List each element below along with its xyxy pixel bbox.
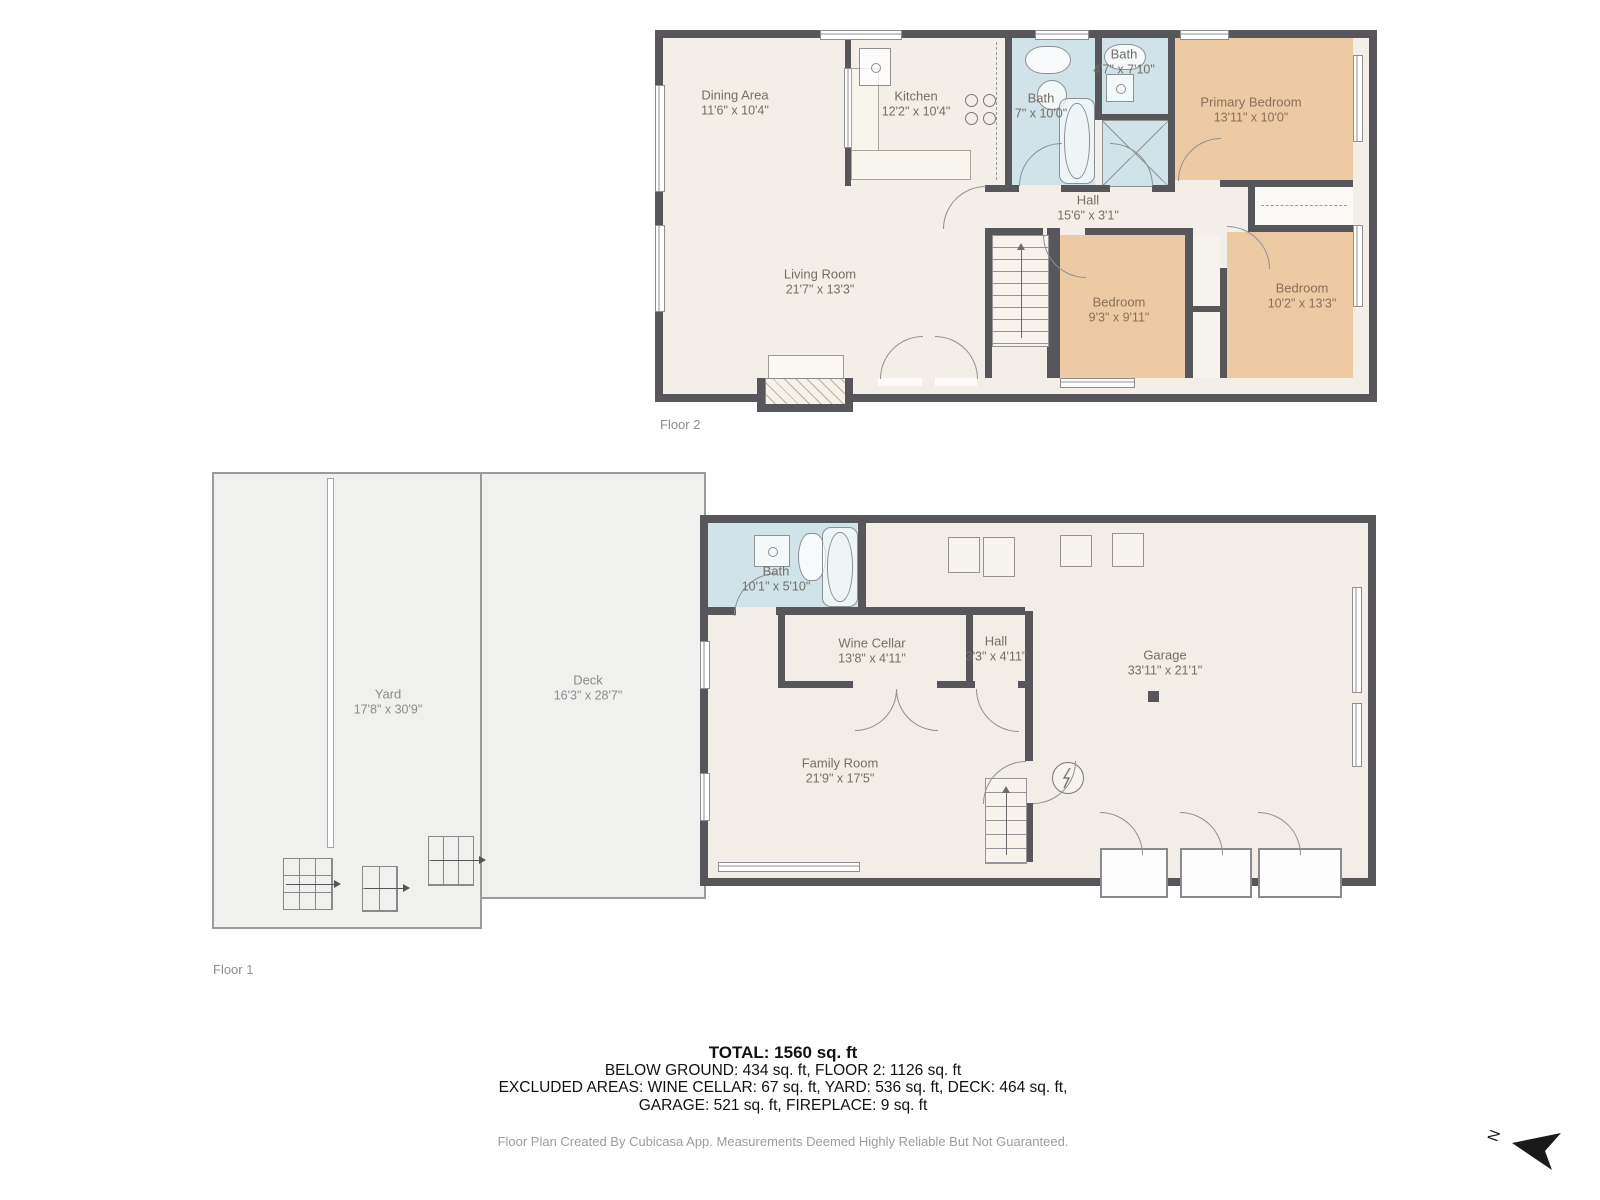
room-name: Family Room: [802, 756, 879, 772]
room-name: Wine Cellar: [838, 636, 906, 652]
kitchen-counter: [851, 150, 971, 180]
wall: [985, 228, 1043, 235]
bath-sink: [754, 535, 790, 567]
room-name: Living Room: [784, 267, 856, 283]
room-dims: 21'7" x 13'3": [784, 282, 856, 297]
room-label-living: Living Room 21'7" x 13'3": [784, 267, 856, 298]
window: [1060, 378, 1135, 388]
door-arc: [1033, 761, 1076, 804]
appliance-dashed-line: [996, 42, 997, 180]
room-label-bath: Bath 10'1" x 5'10": [742, 564, 811, 595]
stove-burner: [983, 112, 996, 125]
staircase: [992, 235, 1049, 347]
summary-line2: EXCLUDED AREAS: WINE CELLAR: 67 sq. ft, …: [320, 1079, 1246, 1097]
room-dims: 16'3" x 28'7": [554, 688, 623, 703]
wall: [778, 681, 853, 688]
room-label-yard: Yard 17'8" x 30'9": [354, 687, 423, 718]
stove-burner: [965, 112, 978, 125]
room-dims: 15'6" x 3'1": [1057, 208, 1119, 223]
window: [655, 85, 665, 192]
door-arc: [983, 761, 1026, 804]
room-label-bedroom-right: Bedroom 10'2" x 13'3": [1268, 281, 1337, 312]
room-dims: 7" x 10'0": [1015, 106, 1067, 121]
room-dims: 13'11" x 10'0": [1200, 110, 1301, 125]
fireplace: [765, 378, 847, 406]
stairs-up-arrow: [1021, 245, 1022, 338]
garage-door-stoop: [1258, 848, 1342, 898]
wall: [1018, 681, 1025, 688]
door-arc: [976, 689, 1019, 732]
north-arrow-dart: [1512, 1133, 1561, 1170]
deck-steps: [428, 836, 474, 886]
room-dims: 33'11" x 21'1": [1128, 663, 1203, 678]
steps-direction-arrow: [365, 888, 403, 889]
window: [1353, 55, 1363, 142]
dryer: [983, 537, 1015, 577]
bath-sink: [1106, 74, 1134, 102]
room-label-hall: Hall 3'3" x 4'11": [966, 634, 1027, 665]
door-arc: [880, 336, 923, 379]
window: [1035, 30, 1089, 40]
floorplan-canvas: Yard 17'8" x 30'9" Deck 16'3" x 28'7": [0, 0, 1600, 1200]
summary-line3: GARAGE: 521 sq. ft, FIREPLACE: 9 sq. ft: [320, 1097, 1246, 1115]
total-area: TOTAL: 1560 sq. ft: [320, 1044, 1246, 1062]
stove-burner: [965, 94, 978, 107]
door-arc: [935, 336, 978, 379]
wall: [858, 523, 866, 615]
wall: [985, 235, 992, 378]
wall: [1152, 185, 1175, 192]
room-dims: 13'8" x 4'11": [838, 651, 906, 666]
appliance: [1112, 533, 1144, 567]
wall: [845, 38, 851, 68]
door-arc: [943, 186, 986, 229]
room-label-bath-main: Bath 7" x 10'0": [1015, 91, 1067, 122]
room-dims: 3'3" x 4'11": [966, 649, 1027, 664]
window: [655, 225, 665, 312]
door-arc: [896, 689, 938, 731]
room-name: Deck: [554, 673, 623, 689]
room-label-kitchen: Kitchen 12'2" x 10'4": [882, 89, 951, 120]
room-name: Yard: [354, 687, 423, 703]
wall: [985, 185, 1019, 192]
garage-door-stoop: [1180, 848, 1252, 898]
wall: [708, 607, 736, 615]
window: [1353, 225, 1363, 307]
kitchen-sink: [859, 48, 891, 86]
room-name: Primary Bedroom: [1200, 95, 1301, 111]
primary-closet: [1255, 187, 1353, 225]
wall: [757, 404, 853, 412]
room-label-dining: Dining Area 11'6" x 10'4": [701, 88, 769, 119]
floor2-label: Floor 2: [660, 417, 700, 432]
window: [700, 641, 710, 689]
room-dims: 12'2" x 10'4": [882, 104, 951, 119]
door-arc: [855, 689, 897, 731]
room-label-garage: Garage 33'11" x 21'1": [1128, 648, 1203, 679]
summary-line1: BELOW GROUND: 434 sq. ft, FLOOR 2: 1126 …: [320, 1062, 1246, 1080]
closet-rod-line: [1261, 205, 1347, 206]
steps-direction-arrow: [431, 860, 479, 861]
north-label: N: [1485, 1128, 1505, 1144]
room-label-hall: Hall 15'6" x 3'1": [1057, 193, 1119, 224]
window: [700, 773, 710, 821]
north-arrow: N: [1455, 1095, 1575, 1185]
stove-burner: [983, 94, 996, 107]
room-name: Bedroom: [1268, 281, 1337, 297]
room-dims: 9'3" x 9'11": [1089, 310, 1150, 325]
wall: [1185, 228, 1193, 378]
room-name: Dining Area: [701, 88, 769, 104]
disclaimer: Floor Plan Created By Cubicasa App. Meas…: [320, 1134, 1246, 1149]
window: [1180, 30, 1229, 40]
steps-direction-arrow: [286, 884, 334, 885]
room-name: Garage: [1128, 648, 1203, 664]
wall: [1220, 268, 1227, 378]
yard-steps: [362, 866, 398, 912]
wall: [1193, 306, 1220, 312]
floor1-label: Floor 1: [213, 962, 253, 977]
room-name: Bath: [1015, 91, 1067, 107]
room-name: Kitchen: [882, 89, 951, 105]
area-summary: TOTAL: 1560 sq. ft BELOW GROUND: 434 sq.…: [320, 1044, 1246, 1114]
wall: [1168, 38, 1175, 187]
window: [718, 862, 860, 872]
room-dims: 4'7" x 7'10": [1093, 62, 1155, 77]
wall: [776, 607, 1025, 615]
room-dims: 10'2" x 13'3": [1268, 296, 1337, 311]
window: [820, 30, 902, 40]
room-name: Bath: [1093, 47, 1155, 63]
door-opening: [878, 378, 922, 386]
room-dims: 21'9" x 17'5": [802, 771, 879, 786]
wall: [1102, 114, 1175, 120]
wall: [1248, 225, 1353, 232]
yard-steps: [283, 858, 333, 910]
wall: [937, 681, 975, 688]
bathtub: [822, 527, 858, 607]
wall: [778, 615, 785, 688]
room-dims: 11'6" x 10'4": [701, 103, 769, 118]
window: [1352, 703, 1362, 767]
room-label-bedroom-mid: Bedroom 9'3" x 9'11": [1089, 295, 1150, 326]
wall: [1085, 228, 1185, 235]
door-arc: [1258, 812, 1301, 855]
room-name: Hall: [1057, 193, 1119, 209]
room-name: Bath: [742, 564, 811, 580]
window: [1352, 587, 1362, 693]
fireplace-flue: [1148, 691, 1159, 702]
room-dims: 17'8" x 30'9": [354, 702, 423, 717]
wall: [1061, 185, 1110, 192]
wall: [1220, 180, 1353, 187]
floor2-plan: Dining Area 11'6" x 10'4" Kitchen 12'2" …: [655, 30, 1377, 402]
room-label-family: Family Room 21'9" x 17'5": [802, 756, 879, 787]
wall: [1005, 38, 1012, 185]
room-label-deck: Deck 16'3" x 28'7": [554, 673, 623, 704]
room-label-primary-bedroom: Primary Bedroom 13'11" x 10'0": [1200, 95, 1301, 126]
door-opening: [935, 378, 977, 386]
room-label-wine-cellar: Wine Cellar 13'8" x 4'11": [838, 636, 906, 667]
door-arc: [1180, 812, 1223, 855]
room-name: Hall: [966, 634, 1027, 650]
garage-door-stoop: [1100, 848, 1168, 898]
room-name: Bedroom: [1089, 295, 1150, 311]
washer: [948, 537, 980, 573]
fireplace-hearth: [768, 355, 844, 380]
floor1-plan: Bath 10'1" x 5'10" Wine Cellar 13'8" x 4…: [700, 515, 1376, 886]
appliance: [1060, 535, 1092, 567]
yard-fence-line: [327, 478, 334, 848]
toilet: [1025, 46, 1071, 74]
door-arc: [1100, 812, 1143, 855]
room-label-bath-ensuite: Bath 4'7" x 7'10": [1093, 47, 1155, 78]
room-dims: 10'1" x 5'10": [742, 579, 811, 594]
